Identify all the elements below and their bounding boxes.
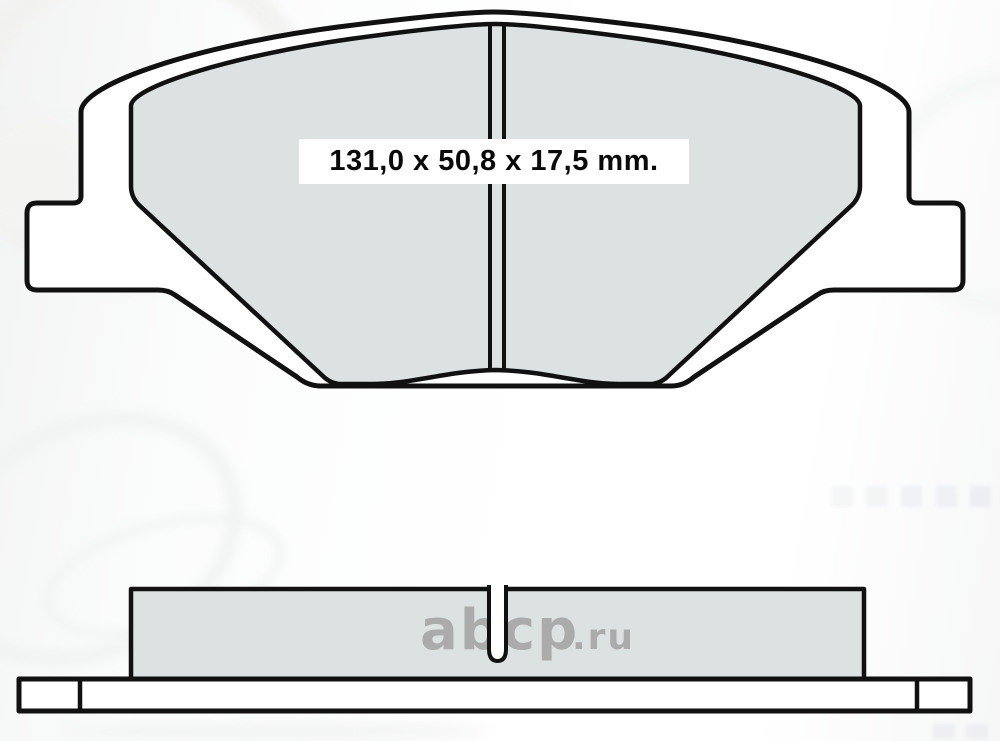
brake-pad-technical-drawing: abcp .ru bbox=[0, 0, 1000, 741]
front-view bbox=[27, 12, 963, 386]
brake-pad-product-image: abcp .ru 131,0 x 50,8 x 17,5 mm. bbox=[0, 0, 1000, 741]
dimension-text: 131,0 x 50,8 x 17,5 mm. bbox=[329, 145, 658, 177]
backing-plate-strip bbox=[19, 679, 970, 711]
side-view: abcp .ru bbox=[19, 585, 970, 711]
dimension-label: 131,0 x 50,8 x 17,5 mm. bbox=[299, 139, 689, 184]
friction-groove bbox=[489, 585, 506, 661]
watermark-tld: .ru bbox=[572, 617, 635, 658]
